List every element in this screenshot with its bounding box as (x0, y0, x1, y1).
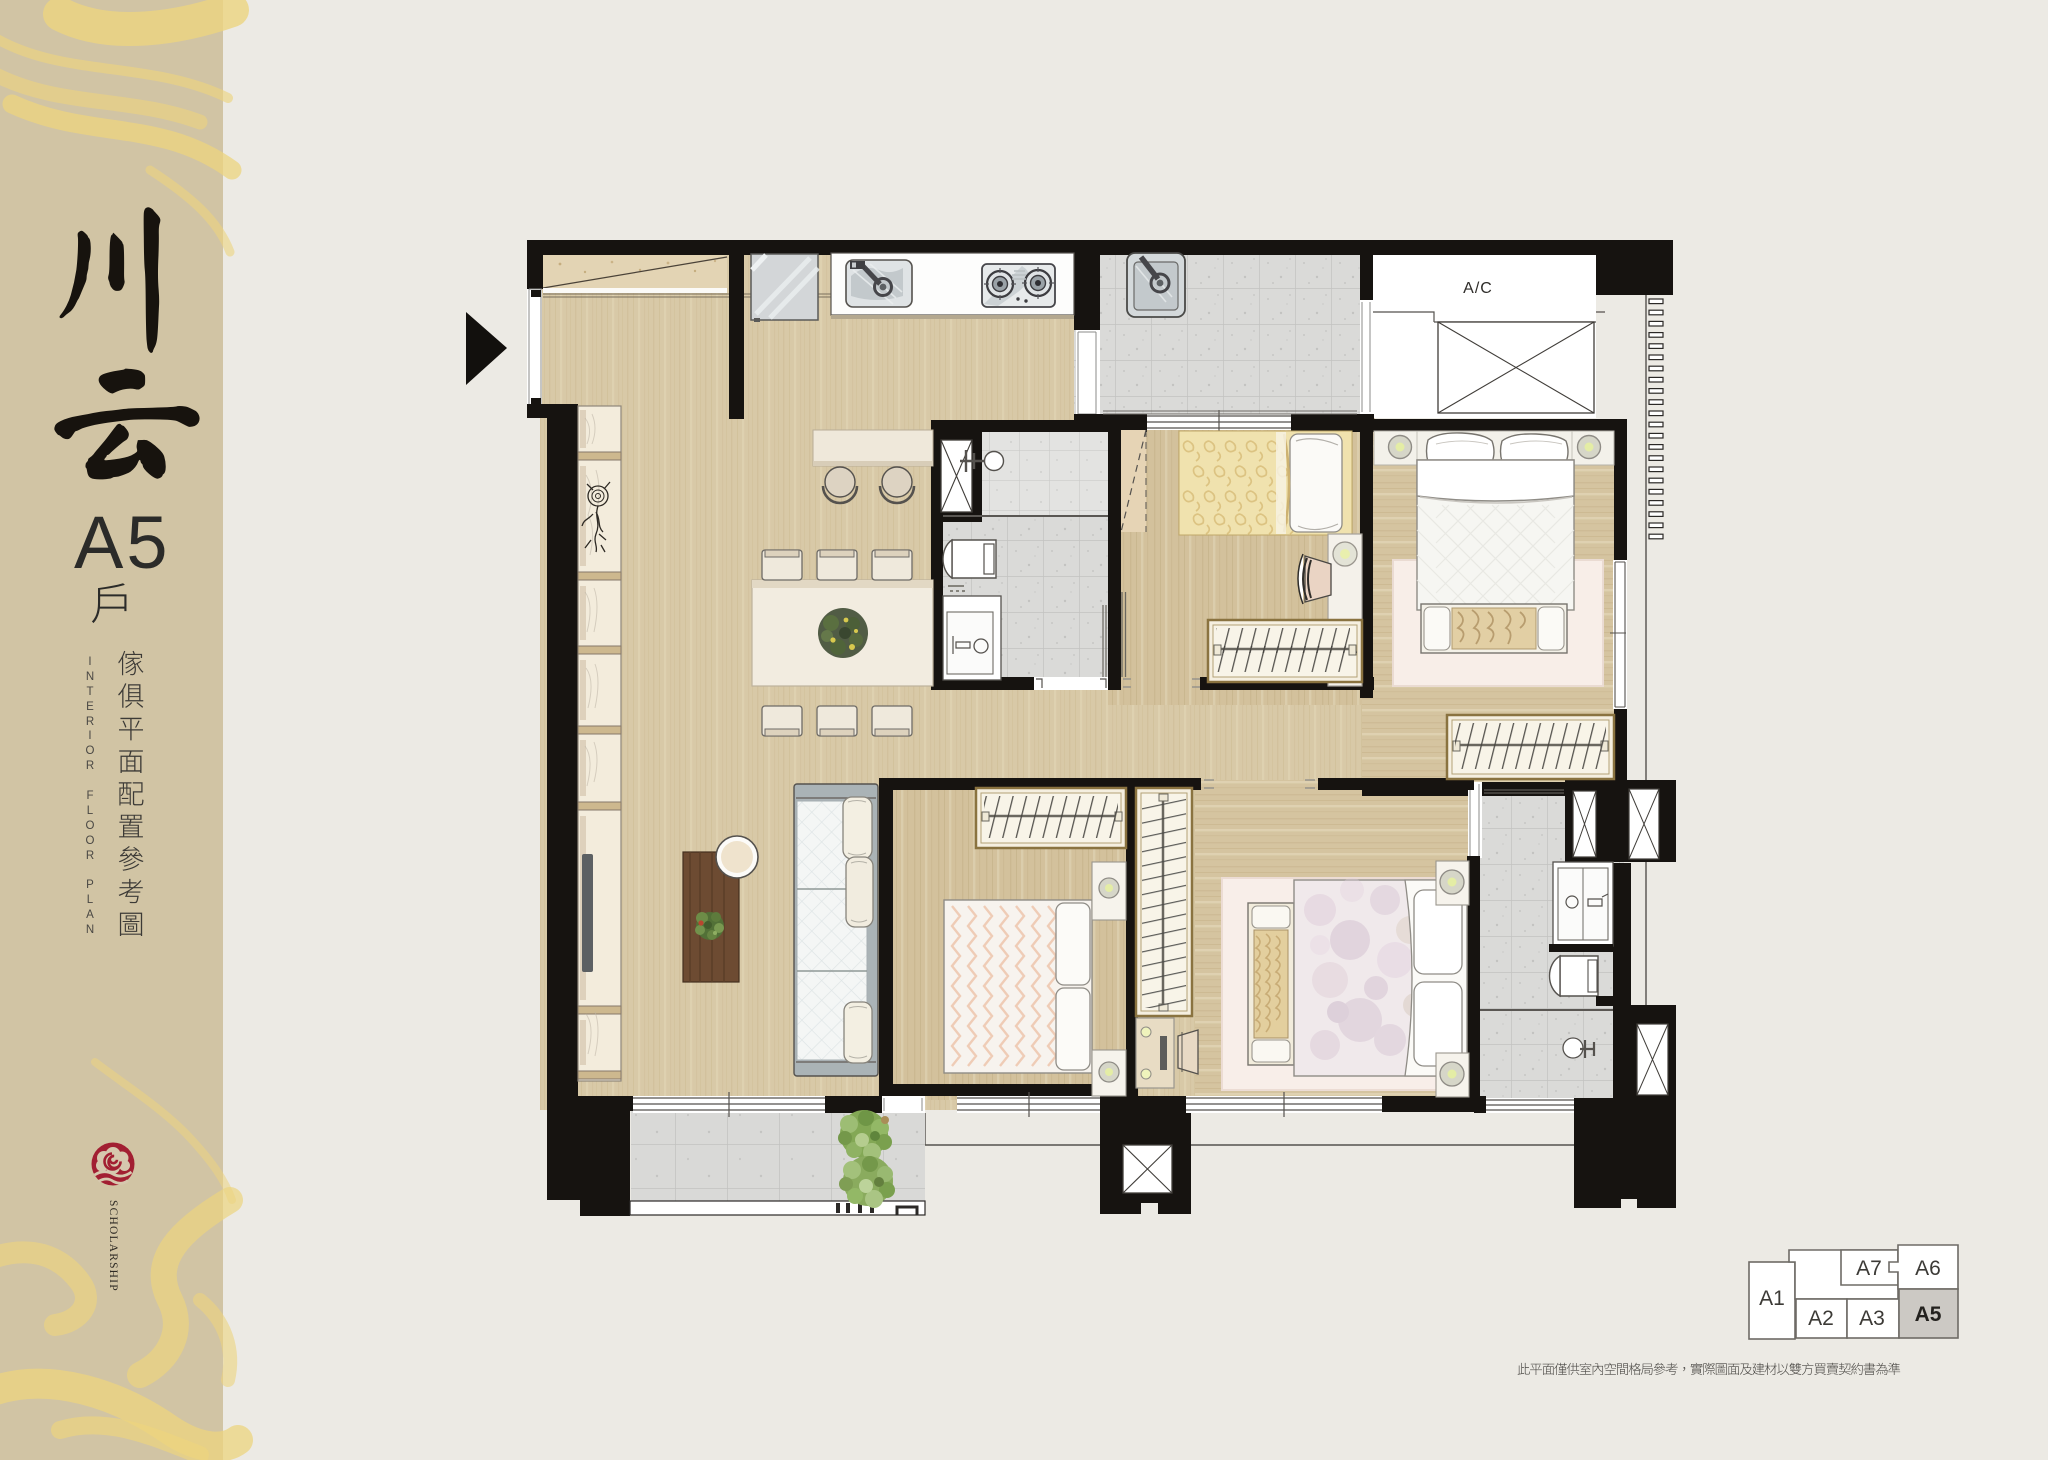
svg-text:A6: A6 (1915, 1257, 1941, 1280)
svg-text:A5: A5 (74, 501, 171, 584)
svg-text:O: O (86, 820, 95, 832)
svg-text:N: N (86, 924, 94, 936)
svg-text:R: R (86, 716, 94, 728)
svg-text:F: F (86, 790, 93, 802)
svg-text:SCHOLARSHIP: SCHOLARSHIP (107, 1200, 119, 1292)
svg-text:O: O (86, 835, 95, 847)
svg-text:A7: A7 (1856, 1257, 1882, 1280)
svg-text:T: T (86, 686, 93, 698)
svg-text:I: I (88, 730, 91, 742)
svg-text:A1: A1 (1759, 1287, 1785, 1310)
svg-text:L: L (87, 805, 94, 817)
svg-text:A5: A5 (1915, 1303, 1942, 1326)
svg-text:A: A (86, 909, 94, 921)
svg-text:P: P (86, 879, 94, 891)
svg-text:N: N (86, 671, 94, 683)
svg-text:R: R (86, 850, 94, 862)
svg-text:A2: A2 (1808, 1307, 1834, 1330)
svg-text:E: E (86, 701, 94, 713)
svg-text:L: L (87, 894, 94, 906)
svg-text:A/C: A/C (1463, 280, 1493, 297)
svg-text:R: R (86, 760, 94, 772)
svg-text:A3: A3 (1859, 1307, 1885, 1330)
svg-text:I: I (88, 656, 91, 668)
svg-text:O: O (86, 745, 95, 757)
